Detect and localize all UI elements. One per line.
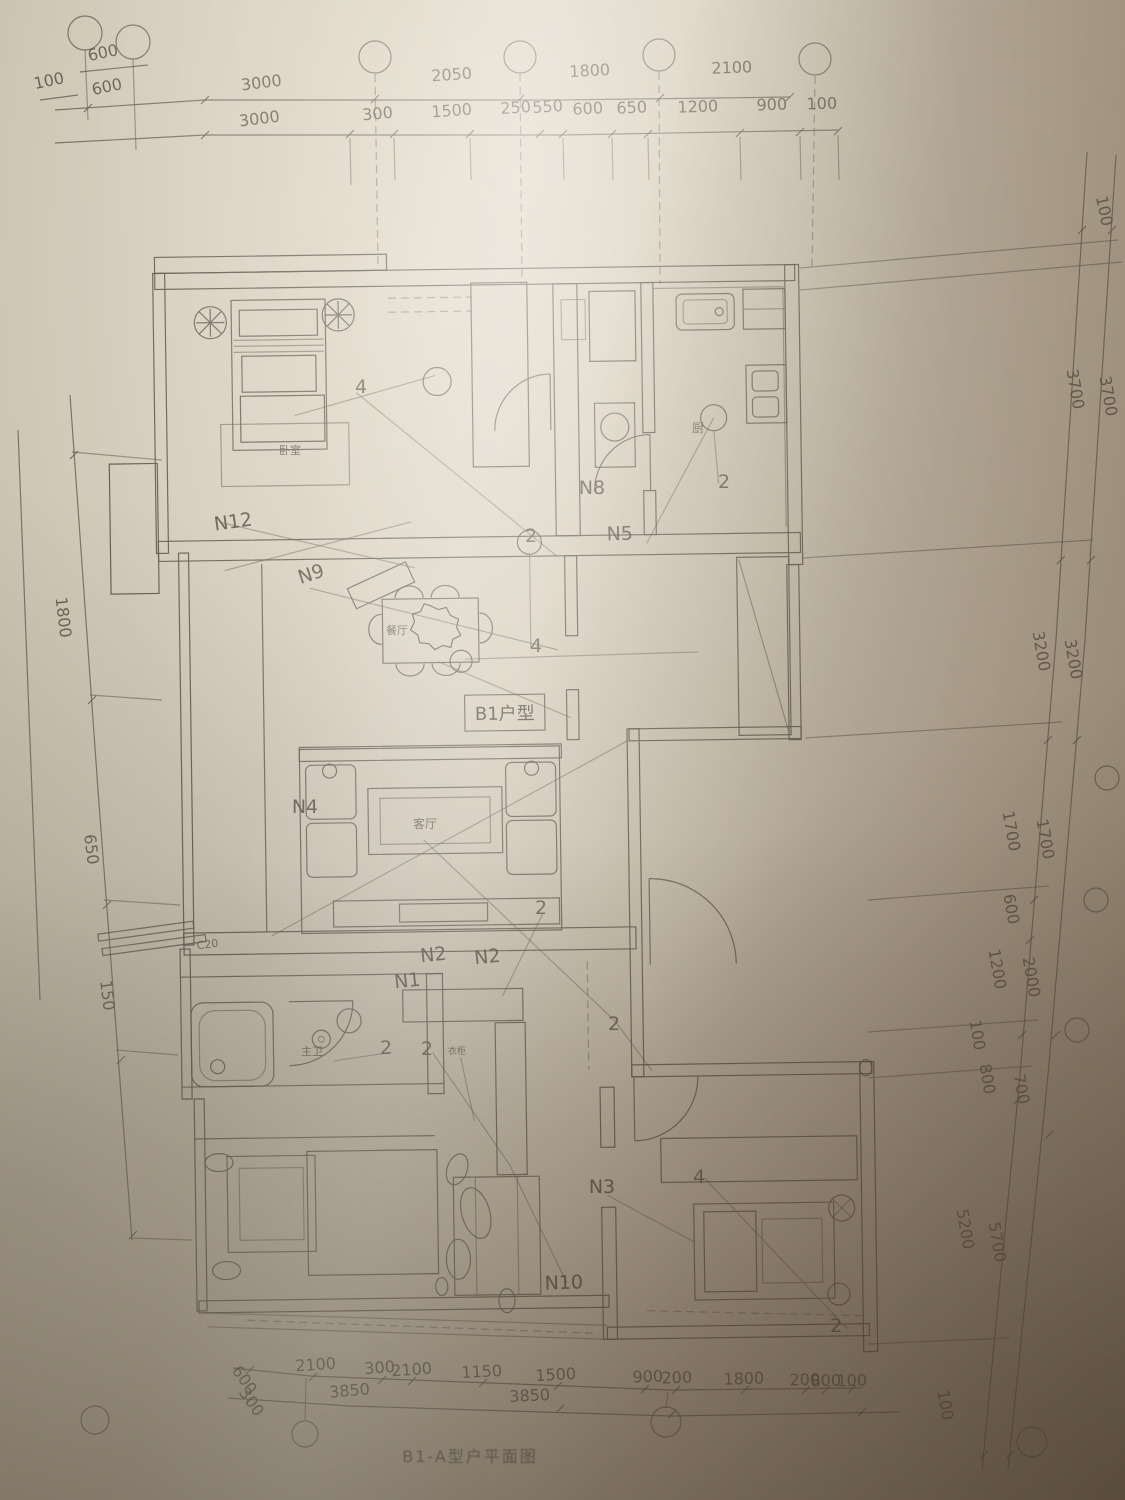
dim-label: 600 [572,98,603,119]
master-bathroom [191,1001,362,1087]
circuit-label: N5 [606,523,633,546]
dim-label: 1700 [999,809,1025,852]
dim-label: 1700 [1033,817,1059,860]
left-dimension-labels: 1800650150 [52,596,119,1012]
dim-label: 600 [999,892,1023,925]
floorplan-drawing: B1户型 [0,0,1125,1500]
dim-label: 3200 [1029,629,1055,672]
dim-label: 1200 [677,96,718,116]
leader-number: 4 [693,1166,705,1188]
circuit-label: N1 [393,969,421,994]
dim-label: 650 [80,833,103,866]
leader-number: 4 [530,635,542,657]
circuit-label: N3 [589,1176,615,1198]
dim-label: 150 [96,979,119,1012]
dim-label: 3200 [1061,637,1087,680]
room-label: 厨 [692,421,704,435]
dimension-ticks [70,93,1116,1459]
dim-label: 700 [1009,1072,1033,1105]
dim-label: 1500 [535,1364,577,1385]
circuit-label: N8 [579,477,605,499]
entry-door [649,877,736,964]
dim-label: 3000 [240,71,283,95]
dim-label: 650 [616,97,647,118]
bathroom-top [493,299,635,469]
dim-label: 1800 [723,1368,764,1388]
top-dimension-labels: 6001006003000205018002100300030015002505… [32,40,837,130]
room-label: 衣柜 [448,1045,466,1057]
circuit-label: N4 [292,796,318,818]
dim-label: 1800 [569,60,611,81]
dim-label: 1800 [52,596,76,639]
dimension-chain-lines [18,65,1116,1470]
kitchen [592,287,788,530]
ink-smudges [98,912,875,1319]
leader-number: 2 [608,1013,620,1035]
dim-label: 2050 [431,64,473,86]
circuit-label: N12 [213,508,254,535]
leader-number: 2 [525,525,537,547]
bedroom-bottom-left [201,1147,608,1345]
annotation-labels: C20 [196,937,219,953]
dim-label: 900 [756,94,787,114]
drawing-caption: B1-A型户平面图 [402,1447,538,1466]
leader-number: 2 [830,1315,842,1337]
dim-label: 3000 [238,107,281,131]
dim-label: 100 [965,1018,989,1051]
bottom-dimension-labels: 6003002100300210011501500900200180020080… [228,1354,867,1420]
dim-label: 300 [361,103,393,125]
dim-label: 1150 [461,1361,503,1382]
dim-label: 550 [532,96,564,117]
dim-label: 5200 [953,1207,979,1250]
circuit-label: N9 [295,560,327,589]
dim-label: 3850 [328,1379,370,1401]
dim-label: 200 [661,1367,692,1387]
living-room [299,744,564,934]
dim-label: 1500 [431,100,473,122]
annotation-label: C20 [196,937,219,953]
unit-type-label: B1户型 [475,703,535,725]
dim-label: 900 [632,1366,663,1386]
room-label: 卧室 [279,443,301,457]
leader-number: 2 [421,1038,433,1060]
dim-label: 100 [806,93,837,113]
right-dimension-labels: 1003700370032003200170017006001200200010… [933,194,1121,1422]
room-label: 客厅 [413,816,437,831]
dim-label: 2100 [711,57,752,77]
dim-label: 250 [500,97,532,118]
dim-label: 100 [836,1370,867,1390]
dim-label: 800 [975,1062,999,1095]
photographed-floorplan: B1户型 [0,0,1125,1500]
walls [106,248,877,1362]
dim-label: 3850 [509,1385,551,1406]
leader-number: 2 [535,897,547,919]
dim-label: 100 [32,68,66,93]
leader-number: 2 [380,1037,392,1059]
dim-label: 2000 [1019,955,1045,998]
dim-label: 2100 [295,1354,337,1376]
dim-label: 3700 [1063,367,1089,410]
bedroom-bottom-right [646,1195,863,1319]
leader-lines [219,362,847,1337]
circuit-label: N10 [544,1271,583,1294]
circuit-label: N2 [473,945,501,970]
dim-label: 100 [933,1388,957,1421]
circuit-label: N2 [419,943,447,968]
room-bottom-middle [450,960,701,1295]
unit-label-box: B1户型 [438,660,571,732]
leader-number: 4 [355,376,367,398]
leader-number: 2 [718,471,730,493]
dim-label: 2100 [391,1359,433,1381]
dim-label: 5700 [985,1220,1011,1263]
dim-label: 600 [90,74,124,99]
dim-label: 600 [86,40,120,65]
dim-label: 1200 [985,947,1011,990]
circuit-labels: N12N9N8N5N4N2N2N1N3N10 [213,477,634,1295]
room-label: 餐厅 [386,623,408,637]
bedroom-top-left [194,297,475,487]
room-label: 主卫 [301,1045,323,1058]
